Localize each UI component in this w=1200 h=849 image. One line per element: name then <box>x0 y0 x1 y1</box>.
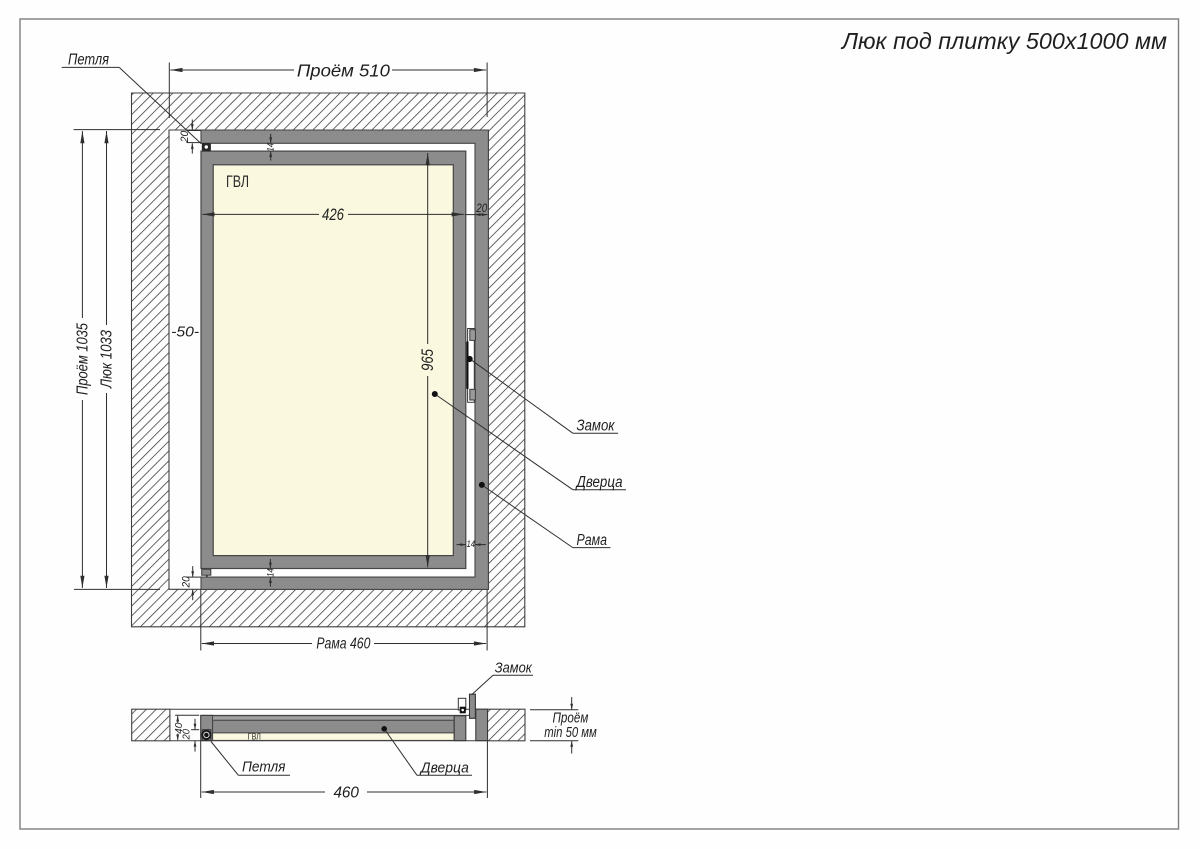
svg-text:Проём 1035: Проём 1035 <box>74 323 91 395</box>
svg-text:Люк 1033: Люк 1033 <box>99 330 116 389</box>
svg-text:14: 14 <box>266 568 277 577</box>
svg-text:Рама 460: Рама 460 <box>316 636 370 653</box>
svg-text:965: 965 <box>418 349 437 371</box>
svg-text:20: 20 <box>181 575 193 588</box>
svg-text:20: 20 <box>475 203 487 215</box>
svg-text:-50-: -50- <box>171 324 199 341</box>
svg-text:Рама: Рама <box>577 532 608 549</box>
svg-text:20: 20 <box>179 130 191 143</box>
svg-text:Петля: Петля <box>68 52 109 69</box>
svg-text:Проём 510: Проём 510 <box>297 61 390 81</box>
svg-text:460: 460 <box>333 785 359 802</box>
svg-text:Дверца: Дверца <box>419 760 469 777</box>
svg-text:426: 426 <box>322 205 344 224</box>
svg-text:Люк под плитку 500х1000 мм: Люк под плитку 500х1000 мм <box>840 28 1167 54</box>
svg-text:20: 20 <box>180 729 192 741</box>
svg-text:14: 14 <box>467 539 476 550</box>
svg-text:ГВЛ: ГВЛ <box>226 172 249 191</box>
svg-text:Замок: Замок <box>495 660 533 676</box>
svg-text:Дверца: Дверца <box>575 474 623 491</box>
svg-text:min 50 мм: min 50 мм <box>544 724 597 741</box>
svg-text:Замок: Замок <box>577 418 616 435</box>
svg-text:Петля: Петля <box>242 759 286 776</box>
svg-text:ГВЛ: ГВЛ <box>248 732 261 742</box>
svg-text:14: 14 <box>266 143 277 152</box>
